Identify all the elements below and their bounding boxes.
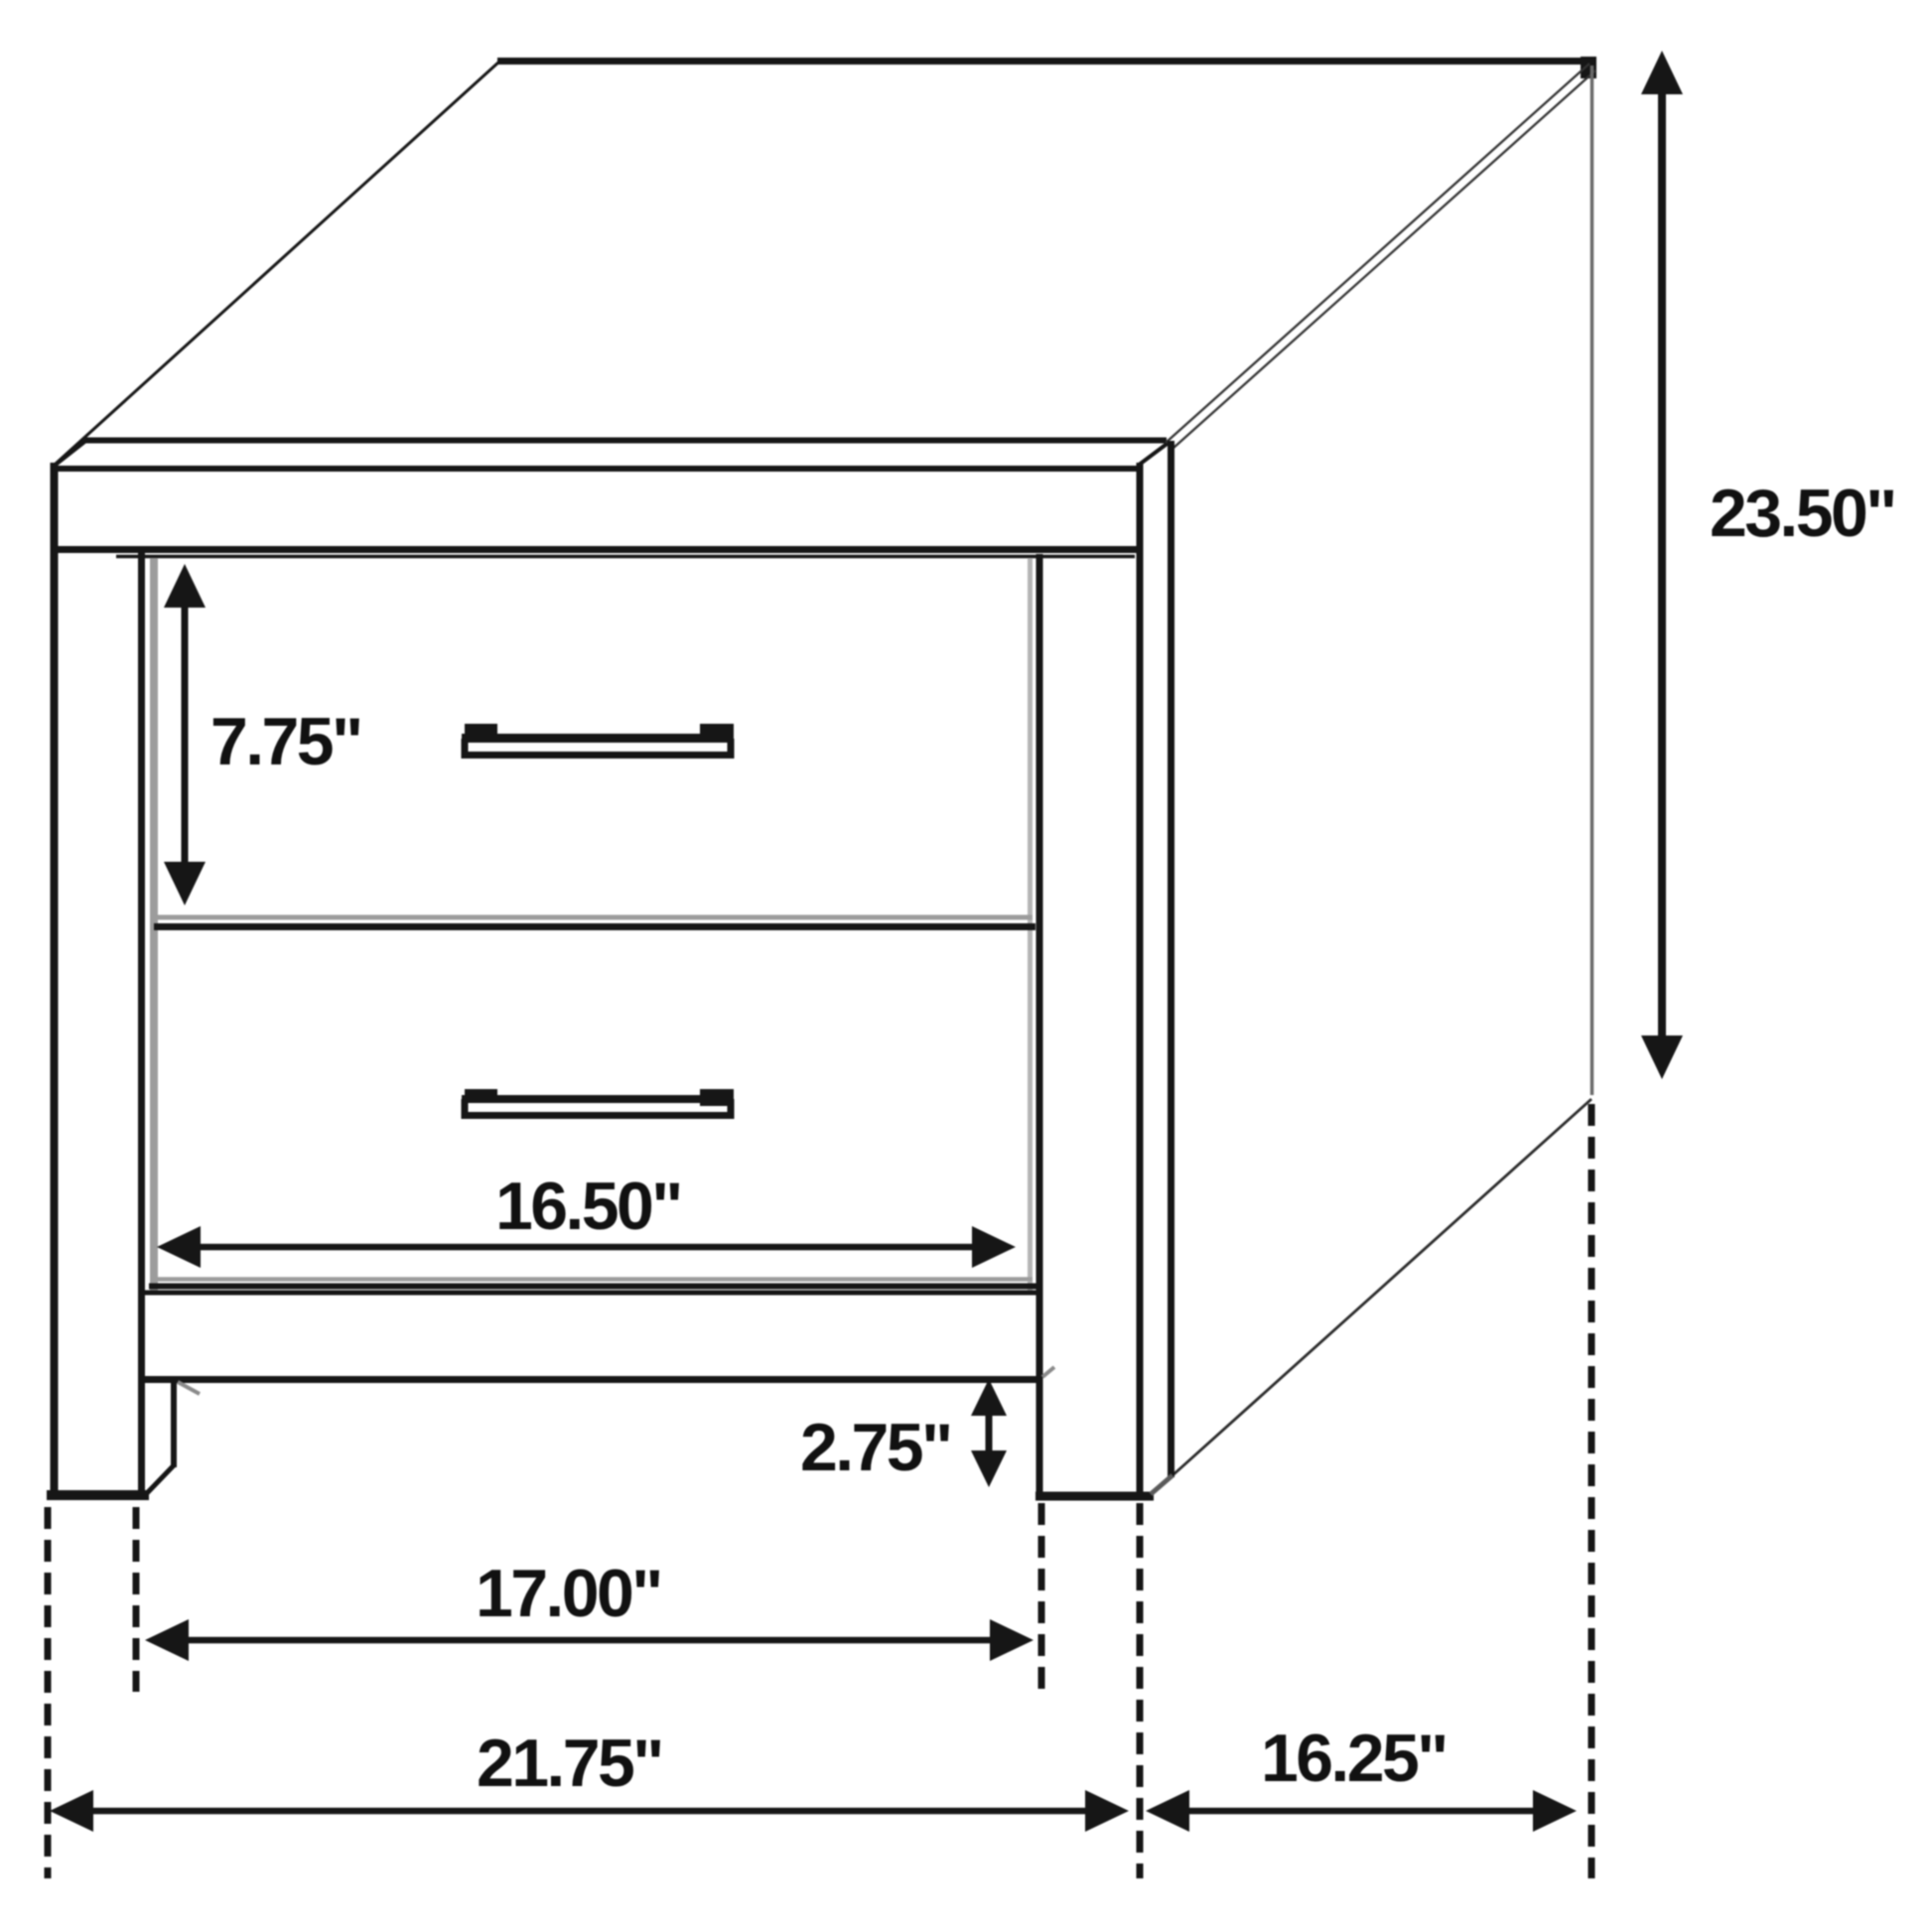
svg-text:17.00": 17.00" <box>476 1556 661 1631</box>
svg-text:16.50": 16.50" <box>495 1169 681 1244</box>
svg-text:21.75": 21.75" <box>477 1725 662 1801</box>
svg-text:16.25": 16.25" <box>1261 1721 1447 1796</box>
svg-text:7.75": 7.75" <box>210 704 361 779</box>
svg-text:2.75": 2.75" <box>800 1410 951 1485</box>
svg-text:23.50": 23.50" <box>1710 476 1895 551</box>
